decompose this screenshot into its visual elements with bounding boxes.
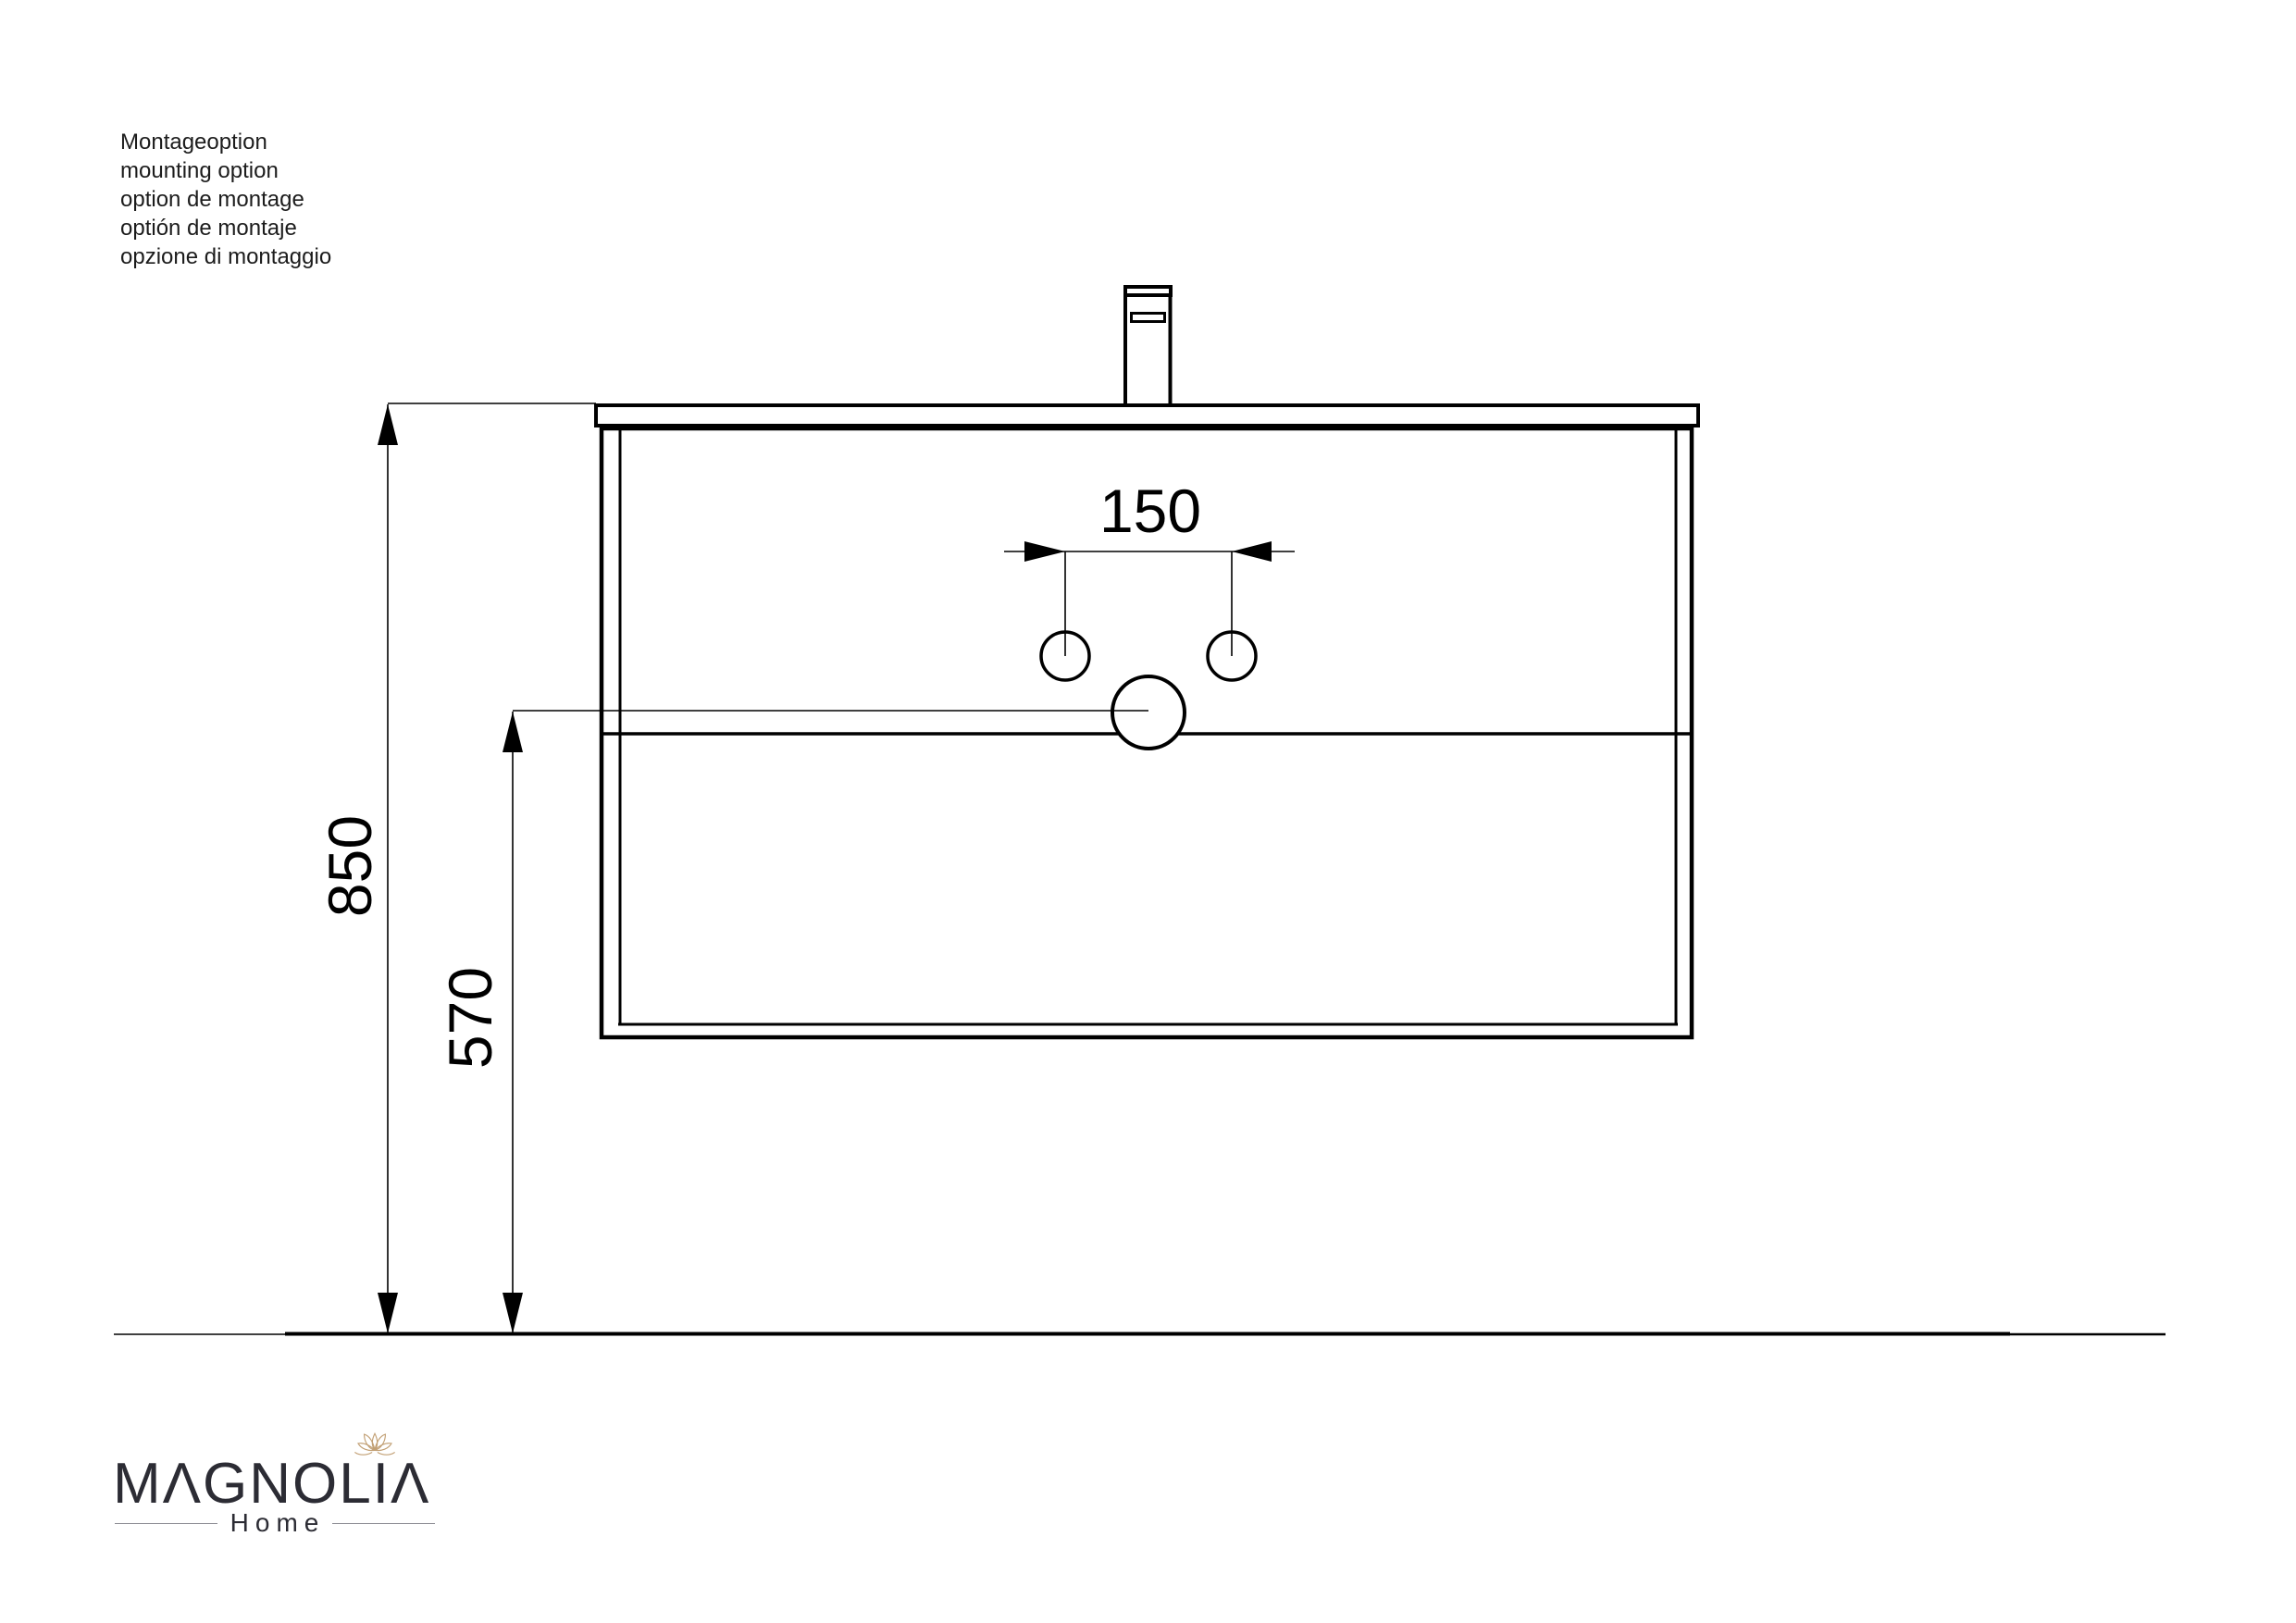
brand-subtitle: Home [217, 1508, 333, 1538]
dim-850-arrow-down-icon [378, 1293, 398, 1333]
subtitle-rule-right [332, 1523, 435, 1524]
faucet [1125, 287, 1171, 407]
brand-name: MΛGNOLIΛ [113, 1451, 430, 1517]
dim-850-label: 850 [316, 815, 384, 917]
dim-150-label: 150 [1099, 477, 1201, 545]
floor-line [114, 1334, 2166, 1335]
dim-outlet-height: 570 [436, 712, 523, 1333]
vanity-elevation-drawing: 850 570 [0, 0, 2296, 1623]
dim-570-label: 570 [436, 967, 504, 1069]
dim-570-arrow-down-icon [503, 1293, 523, 1333]
dim-570-arrow-up-icon [503, 712, 523, 752]
dim-850-arrow-up-icon [378, 404, 398, 445]
page: Montageoption mounting option option de … [0, 0, 2296, 1623]
brand-subtitle-row: Home [115, 1508, 435, 1538]
washbasin-top [596, 405, 1698, 426]
subtitle-rule-left [115, 1523, 217, 1524]
drain-outlet-hole [1112, 676, 1185, 749]
dim-overall-height: 850 [316, 403, 596, 1333]
brand-logo: MΛGNOLIΛ Home [113, 1427, 465, 1542]
faucet-spout-cap [1125, 287, 1171, 295]
faucet-aerator [1132, 314, 1165, 322]
